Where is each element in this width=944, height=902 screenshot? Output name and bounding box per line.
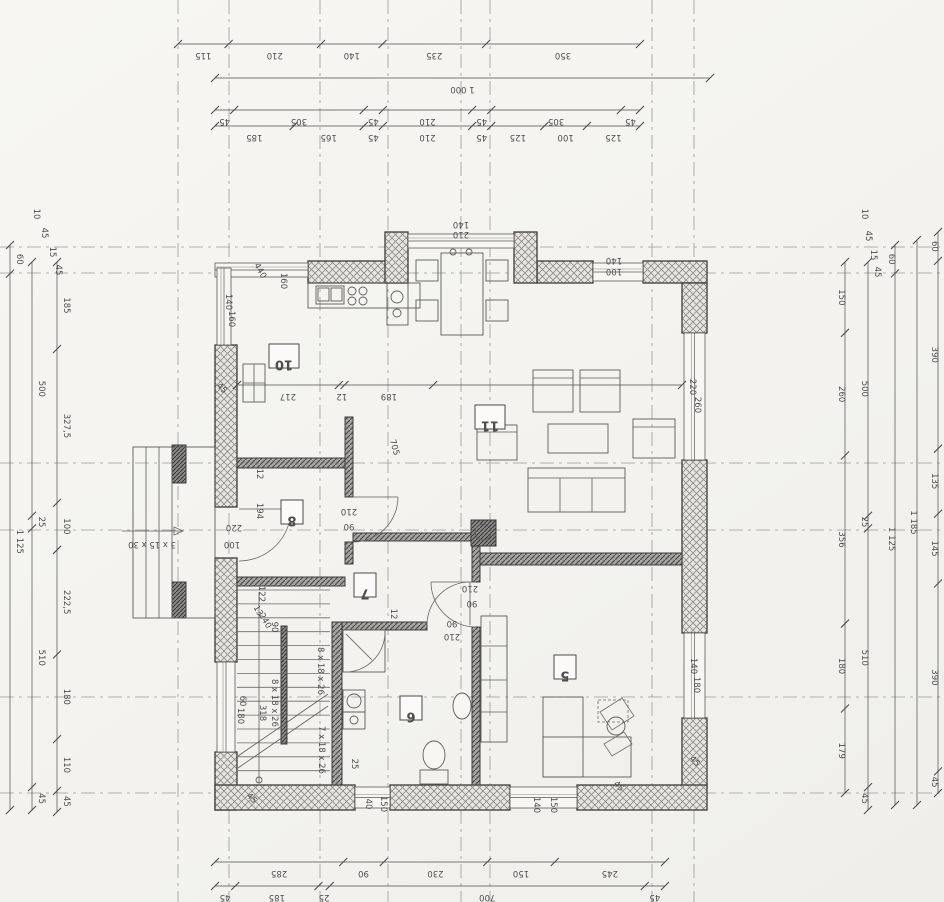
room-label-10: 10 [275,357,293,372]
annotation-label: 45 [53,265,63,276]
dim-value: 150 [513,868,529,878]
annotation-label: 220 [226,522,242,532]
room-label-7: 7 [360,586,369,601]
furniture [580,370,620,412]
room-label-8: 8 [287,513,296,528]
dim-value: 1 125 [14,530,24,554]
dim-value: 230 [427,868,443,878]
fixture-circle [359,287,367,295]
dim-value: 217 [280,391,296,401]
dim-value: 390 [929,669,939,685]
annotation-label: 318 [257,705,267,721]
annotation-label: 160 [278,273,288,289]
annotation-label: 90 [344,521,355,531]
annotation-label: 140 [688,658,698,674]
wall-segment-exterior [215,345,237,507]
annotation-label: 8 x 18 x 26 [315,647,325,695]
annotation-label: 25 [349,759,359,770]
furniture [486,300,508,321]
dim-value: 260 [836,386,846,402]
sanitary-fixture [453,693,471,719]
annotation-label: 220 [687,379,697,395]
furniture [387,283,408,325]
annotation-label: 150 [548,797,558,813]
wall-segment-exterior [215,558,237,662]
wall-segment-interior [472,627,480,785]
dim-value: 1 000 [450,84,474,94]
dim-value: 185 [246,132,262,142]
fixture-circle [391,291,403,303]
dim-value: 135 [929,473,939,489]
dim-value: 185 [269,892,285,902]
fixture-circle [347,694,361,708]
annotation-label: 210 [462,583,478,593]
dim-value: 45 [36,793,46,804]
furniture [548,424,608,453]
dim-value: 210 [419,116,435,126]
annotation-label: 45 [872,267,882,278]
furniture [633,419,675,458]
door-arc-or-shape [600,698,634,730]
dim-value: 222,5 [61,590,71,614]
dim-value: 356 [836,531,846,547]
dim-value: 25 [859,517,869,528]
door-arc-or-shape [345,632,385,672]
annotation-label: 100 [606,266,622,276]
dim-value: 1 125 [886,527,896,551]
dim-value: 510 [36,650,46,666]
dim-value: 45 [368,116,379,126]
wall-segment-exterior [215,785,355,810]
annotation-label: 10 [31,209,41,220]
annotation-label: 15 [868,250,878,261]
dim-value: 60 [929,241,939,252]
wall-segment-interior [237,458,353,468]
annotation-label: 705 [387,438,401,456]
furniture [486,260,508,281]
annotation-label: 40 [363,799,373,810]
dim-value: 150 [836,289,846,305]
dim-value: 305 [291,116,307,126]
dim-value: 245 [602,868,618,878]
furniture [441,253,483,335]
dim-value: 185 [61,297,71,313]
annotation-label: 8 x 18 x 26 [269,679,279,727]
furniture [416,260,438,281]
dim-value: 100 [61,518,71,534]
wall-segment-interior [345,542,353,564]
annotation-label: 160 [226,311,236,327]
dim-value: 25 [36,517,46,528]
dim-value: 210 [419,132,435,142]
dim-value: 45 [625,116,636,126]
dim-value: 350 [555,50,571,60]
fixture-circle [359,297,367,305]
dim-value: 45 [368,132,379,142]
dim-value: 390 [929,347,939,363]
dim-value: 45 [859,793,869,804]
annotation-label: 150 [378,796,388,812]
annotation-label: 194 [254,503,264,519]
wall-segment-exterior [682,460,707,633]
wall-segment-interior [342,622,427,630]
furniture [420,770,448,784]
door-arc-or-shape [604,732,632,756]
dim-value: 510 [859,650,869,666]
furniture [528,468,625,512]
annotation-label: 140 [531,797,541,813]
dim-value: 140 [344,50,360,60]
furniture [481,616,507,742]
fixture-circle [350,716,358,724]
annotation-label: 210 [453,229,469,239]
dim-value: 45 [219,116,230,126]
floor-plan-svg: 1152101402353501 00045305452104530545185… [0,0,944,902]
annotation-label: 210 [341,506,357,516]
dim-value: 45 [649,892,660,902]
annotation-label: 260 [692,397,702,413]
annotation-label: 90 [467,598,478,608]
dim-value: 285 [271,868,287,878]
annotation-label: 10 [859,209,869,220]
dim-value: 45 [220,892,231,902]
wall-pier [172,582,186,618]
annotation-label: 90 [269,622,279,633]
annotation-label: 3 x 15 x 30 [128,539,176,549]
annotation-label: 140 [453,219,469,229]
annotation-label: 45 [39,228,49,239]
dim-value: 165 [321,132,337,142]
dim-value: 179 [836,743,846,759]
room-label-6: 6 [406,709,415,724]
furniture [533,370,573,412]
annotation-label: 100 [224,539,240,549]
annotation-label: 12 [254,469,264,480]
wall-segment-interior [480,553,682,565]
annotation-label: 15 [47,247,57,258]
furniture [343,712,365,729]
dim-value: 110 [61,757,71,773]
dim-value: 189 [381,391,397,401]
wall-segment-interior [345,417,353,497]
wall-segment-exterior [643,261,707,283]
dim-value: 12 [336,391,347,401]
wall-segment-exterior [390,785,510,810]
dim-value: 25 [319,892,330,902]
wall-segment-interior [353,533,472,541]
wall-segment-exterior [577,785,707,810]
dim-value: 1 185 [908,510,918,534]
fixture-circle [348,287,356,295]
dim-value: 327,5 [61,414,71,438]
dim-value: 125 [605,132,621,142]
wall-segment-interior [472,541,480,582]
dim-value: 45 [476,116,487,126]
dim-value: 45 [61,796,71,807]
wall-segment-exterior [682,283,707,333]
fixture-circle [393,309,401,317]
annotation-label: 140 [223,294,233,310]
dim-value: 700 [479,892,495,902]
wall-segment-interior [237,577,345,586]
dim-value: 100 [558,132,574,142]
furniture [343,690,365,712]
fixture-circle [466,249,472,255]
dim-value: 500 [859,381,869,397]
annotation-label: 140 [606,255,622,265]
dim-value: 125 [510,132,526,142]
annotation-label: 180 [691,677,701,693]
wall-pier [281,626,287,744]
fixture-circle [348,297,356,305]
wall-segment-exterior [385,232,408,283]
room-label-5: 5 [560,668,569,683]
dim-value: 145 [929,540,939,556]
furniture [331,288,342,301]
sanitary-fixture [423,741,445,769]
annotation-label: 180 [235,708,245,724]
dim-value: 90 [358,868,369,878]
wall-segment-exterior [514,232,537,283]
wall-segment-exterior [537,261,593,283]
annotation-label: 210 [444,631,460,641]
dim-value: 115 [195,50,211,60]
annotation-label: 12 [388,609,398,620]
annotation-label: 7 x 18 x 26 [316,726,326,774]
furniture [543,737,631,777]
dim-value: 235 [426,50,442,60]
furniture-line [346,634,372,660]
dim-value: 180 [836,658,846,674]
dim-value: 60 [886,254,896,265]
dim-value: 305 [548,116,564,126]
wall-pier [172,445,186,483]
furniture [343,630,385,672]
dim-value: 210 [267,50,283,60]
furniture [416,300,438,321]
annotation-label: 90 [447,618,458,628]
fixture-circle [450,249,456,255]
dim-value: 45 [476,132,487,142]
annotation-label: 122 [256,586,266,602]
dim-value: 60 [14,254,24,265]
annotation-label: 60 [237,696,247,707]
floor-plan-document: 1152101402353501 00045305452104530545185… [0,0,944,902]
dim-value: 180 [61,689,71,705]
dim-value: 500 [36,381,46,397]
annotation-label: 45 [863,231,873,242]
room-label-11: 11 [481,418,499,433]
wall-segment-interior [332,622,342,785]
wall-segment-exterior [682,718,707,788]
dim-value: 45 [929,777,939,788]
